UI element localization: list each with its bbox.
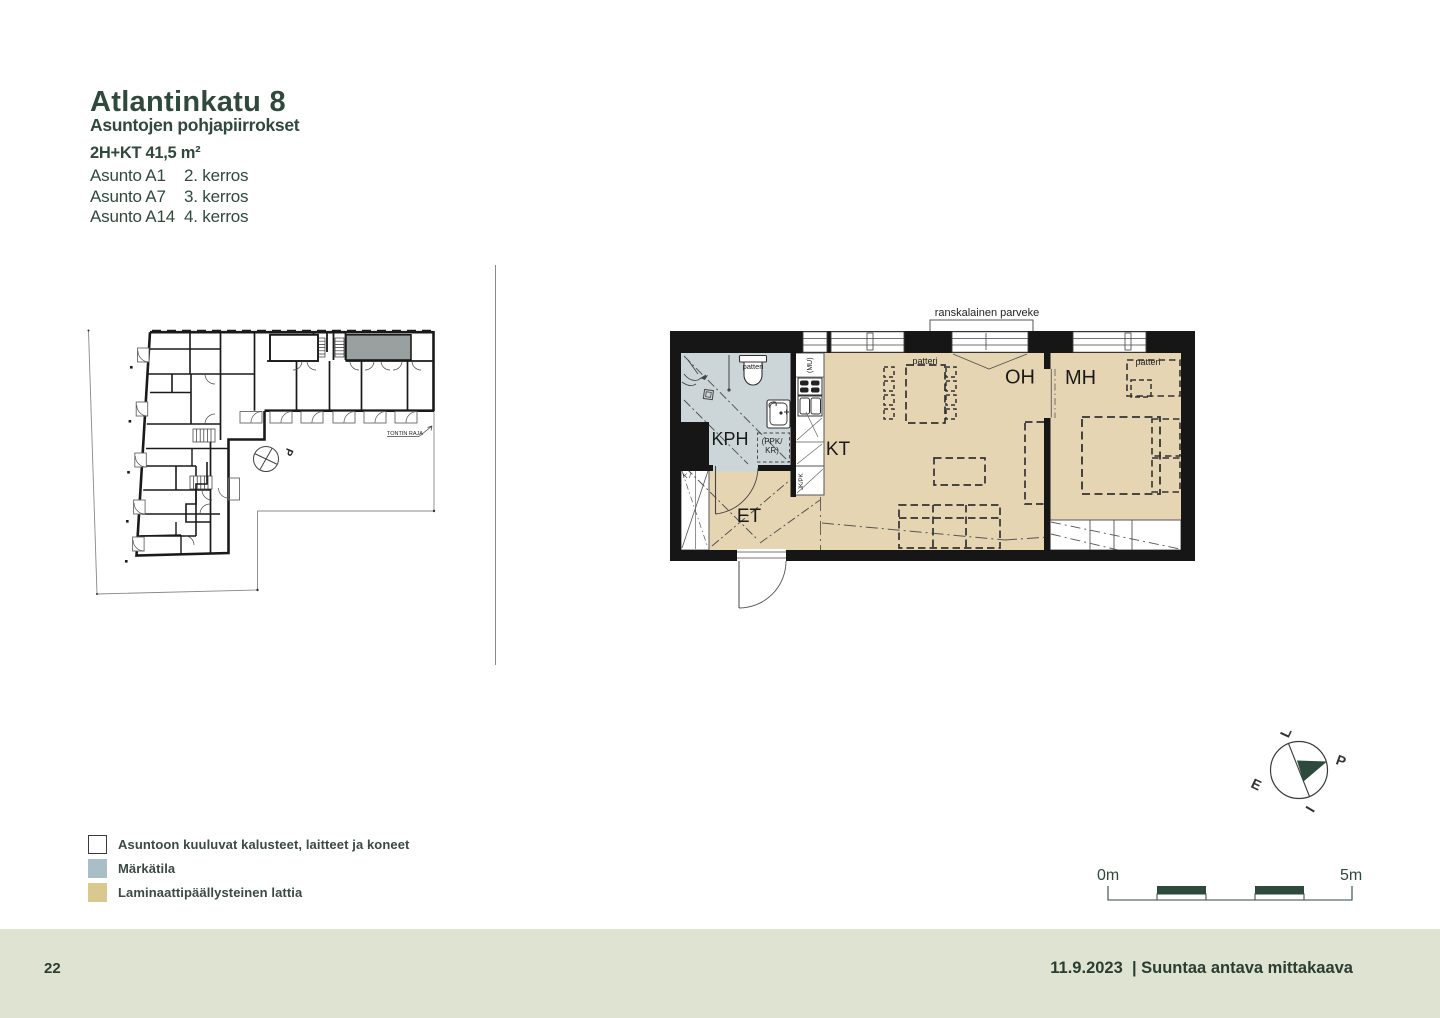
svg-text:L: L [1277, 725, 1295, 740]
svg-text:patteri: patteri [912, 356, 937, 366]
svg-text:(PPK/: (PPK/ [762, 437, 784, 446]
svg-text:MH: MH [1065, 367, 1096, 389]
svg-text:P: P [1334, 751, 1348, 769]
svg-text:0m: 0m [1097, 867, 1119, 884]
svg-text:patteri: patteri [743, 362, 764, 371]
svg-text:P: P [282, 447, 296, 458]
svg-text:KPH: KPH [711, 429, 748, 449]
svg-text:ranskalainen parveke: ranskalainen parveke [935, 307, 1040, 319]
svg-text:5m: 5m [1340, 867, 1362, 884]
svg-text:OH: OH [1005, 367, 1035, 389]
svg-text:(MU): (MU) [807, 357, 814, 373]
svg-text:ET: ET [737, 506, 762, 527]
svg-text:TONTIN RAJA: TONTIN RAJA [387, 431, 423, 437]
svg-text:I: I [1302, 803, 1318, 814]
svg-text:patteri: patteri [1135, 357, 1160, 367]
svg-text:KR): KR) [765, 446, 779, 455]
svg-text:JK/PK: JK/PK [799, 473, 805, 490]
svg-text:K /: K / [683, 473, 691, 480]
svg-text:E: E [1249, 775, 1264, 793]
svg-text:KT: KT [826, 439, 851, 460]
